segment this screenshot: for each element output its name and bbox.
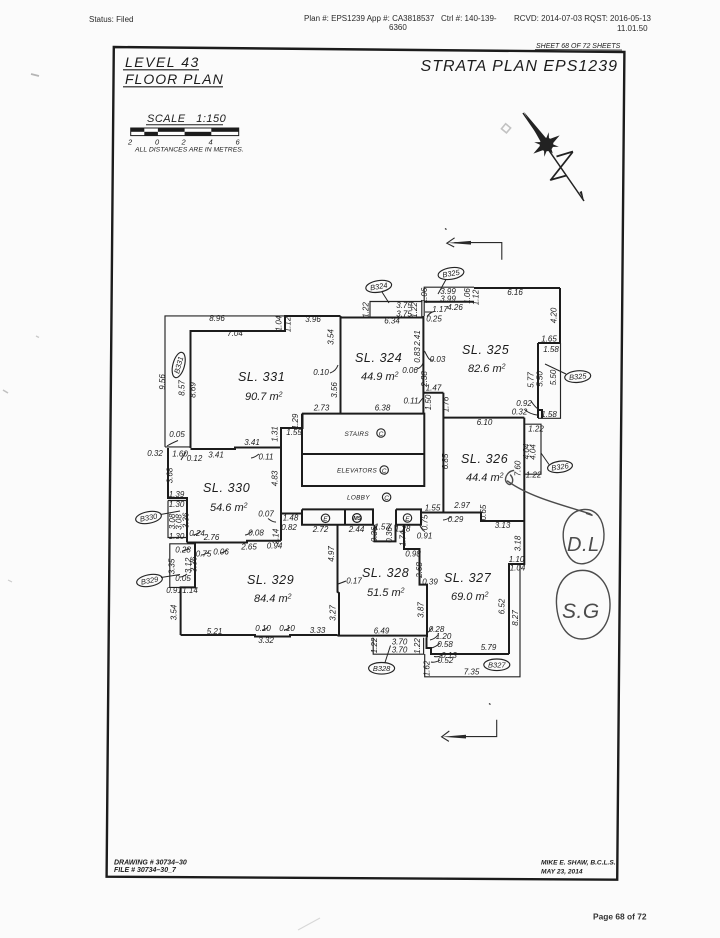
svg-text:0.03: 0.03 — [430, 355, 446, 364]
svg-text:1.04: 1.04 — [275, 315, 284, 331]
svg-text:4: 4 — [209, 138, 213, 147]
svg-text:4.26: 4.26 — [447, 303, 463, 312]
svg-text:3.35: 3.35 — [168, 558, 177, 574]
svg-text:0.29: 0.29 — [448, 515, 464, 524]
svg-text:3.36: 3.36 — [182, 512, 191, 528]
svg-text:3.87: 3.87 — [417, 602, 426, 618]
svg-text:44.9 m2: 44.9 m2 — [361, 371, 399, 383]
svg-text:SL. 331: SL. 331 — [238, 370, 285, 384]
svg-text:1.58: 1.58 — [543, 345, 559, 354]
svg-text:1.17: 1.17 — [432, 305, 448, 314]
svg-text:B325: B325 — [569, 371, 588, 382]
svg-text:0.98: 0.98 — [405, 550, 421, 559]
svg-text:2.41: 2.41 — [413, 330, 422, 347]
svg-text:0.07: 0.07 — [258, 510, 274, 519]
svg-text:LOBBY: LOBBY — [347, 495, 370, 502]
svg-text:11.01.50: 11.01.50 — [617, 24, 648, 33]
svg-text:7.35: 7.35 — [464, 668, 480, 677]
svg-text:0.91: 0.91 — [417, 532, 433, 541]
svg-text:0.91: 0.91 — [166, 586, 182, 595]
svg-text:MIKE E. SHAW, B.C.L.S.: MIKE E. SHAW, B.C.L.S. — [541, 860, 616, 867]
svg-text:3.41: 3.41 — [244, 438, 260, 447]
svg-text:8.96: 8.96 — [209, 314, 225, 323]
svg-text:3.36: 3.36 — [190, 556, 199, 572]
svg-text:1.22: 1.22 — [370, 637, 379, 653]
svg-text:0.10: 0.10 — [279, 624, 295, 633]
svg-text:6.85: 6.85 — [441, 453, 450, 469]
svg-text:5.79: 5.79 — [481, 643, 497, 652]
svg-text:44.4 m2: 44.4 m2 — [466, 472, 504, 484]
svg-text:6.52: 6.52 — [498, 598, 507, 614]
svg-text:2.76: 2.76 — [203, 533, 220, 542]
svg-text:0.65: 0.65 — [479, 504, 488, 520]
svg-text:6.49: 6.49 — [374, 627, 390, 636]
svg-text:0.06: 0.06 — [213, 548, 229, 557]
svg-text:0.28: 0.28 — [175, 546, 191, 555]
svg-text:51.5 m2: 51.5 m2 — [367, 587, 405, 599]
svg-text:3.18: 3.18 — [514, 535, 523, 551]
svg-text:0: 0 — [155, 138, 160, 147]
svg-text:SL. 324: SL. 324 — [355, 351, 402, 365]
svg-text:SL. 325: SL. 325 — [462, 343, 509, 357]
svg-text:DRAWING # 30734–30: DRAWING # 30734–30 — [114, 860, 187, 867]
svg-text:STRATA PLAN EPS1239: STRATA PLAN EPS1239 — [421, 58, 618, 75]
svg-text:3.56: 3.56 — [330, 382, 339, 398]
svg-text:2.68: 2.68 — [415, 562, 424, 579]
svg-text:1.12: 1.12 — [472, 289, 481, 305]
svg-text:0.11: 0.11 — [404, 397, 419, 406]
svg-text:5.50: 5.50 — [549, 369, 558, 385]
svg-text:3.41: 3.41 — [208, 451, 224, 460]
svg-text:84.4 m2: 84.4 m2 — [254, 593, 292, 605]
svg-text:0.83: 0.83 — [413, 347, 422, 363]
svg-text:3.54: 3.54 — [327, 329, 336, 345]
svg-text:69.0 m2: 69.0 m2 — [451, 591, 489, 603]
svg-text:5.77: 5.77 — [527, 372, 536, 388]
svg-text:1.48: 1.48 — [283, 514, 299, 523]
svg-text:2.97: 2.97 — [453, 501, 470, 510]
svg-text:8.57: 8.57 — [178, 380, 187, 396]
svg-text:STAIRS: STAIRS — [345, 431, 370, 438]
svg-text:1.06: 1.06 — [420, 287, 429, 303]
svg-text:3.54: 3.54 — [170, 604, 179, 620]
svg-text:0.05: 0.05 — [169, 430, 185, 439]
svg-text:3.68: 3.68 — [166, 467, 175, 483]
svg-text:0.12: 0.12 — [187, 454, 203, 463]
svg-text:54.6 m2: 54.6 m2 — [210, 502, 248, 514]
svg-text:3.27: 3.27 — [329, 605, 338, 621]
svg-text:5.50: 5.50 — [536, 371, 545, 387]
svg-text:0.75: 0.75 — [421, 514, 430, 530]
svg-text:1.50: 1.50 — [424, 394, 433, 410]
svg-text:82.6 m2: 82.6 m2 — [468, 363, 506, 375]
svg-text:0.36: 0.36 — [370, 526, 379, 542]
svg-text:1.14: 1.14 — [182, 586, 198, 595]
svg-text:MAY 23, 2014: MAY 23, 2014 — [541, 869, 583, 876]
svg-text:4.83: 4.83 — [271, 470, 280, 486]
svg-text:1.22: 1.22 — [526, 471, 542, 480]
svg-text:0.11: 0.11 — [259, 453, 274, 462]
svg-text:2.44: 2.44 — [348, 525, 365, 534]
svg-text:1.31: 1.31 — [271, 426, 280, 442]
svg-text:90.7 m2: 90.7 m2 — [245, 391, 283, 403]
svg-text:6.10: 6.10 — [477, 418, 493, 427]
svg-text:2.65: 2.65 — [240, 543, 257, 552]
svg-text:FILE # 30734–30_7: FILE # 30734–30_7 — [114, 867, 177, 874]
svg-text:C: C — [384, 495, 389, 502]
svg-text:1.22: 1.22 — [528, 425, 544, 434]
svg-text:1.30: 1.30 — [169, 500, 185, 509]
svg-text:Plan #: EPS1239 App #: CA38185: Plan #: EPS1239 App #: CA3818537 Ctrl #:… — [304, 14, 497, 23]
svg-text:B331: B331 — [172, 355, 185, 374]
svg-text:E: E — [405, 516, 410, 523]
svg-text:1.65: 1.65 — [541, 335, 557, 344]
svg-text:B328: B328 — [373, 664, 391, 673]
svg-text:7.60: 7.60 — [514, 460, 523, 476]
svg-text:1.58: 1.58 — [541, 410, 557, 419]
svg-text:S.G: S.G — [562, 600, 600, 623]
svg-text:SL. 329: SL. 329 — [247, 573, 294, 587]
svg-text:1.62: 1.62 — [423, 660, 432, 676]
svg-text:5.21: 5.21 — [207, 627, 223, 636]
svg-text:3.33: 3.33 — [310, 626, 326, 635]
svg-text:C: C — [382, 468, 387, 475]
svg-text:E: E — [323, 516, 328, 523]
svg-text:6360: 6360 — [389, 23, 407, 32]
svg-text:0.36: 0.36 — [385, 527, 394, 543]
svg-text:1.30: 1.30 — [169, 532, 185, 541]
svg-text:1.76: 1.76 — [442, 396, 451, 412]
svg-text:4.04: 4.04 — [529, 444, 538, 460]
svg-text:0.10: 0.10 — [255, 624, 271, 633]
svg-text:Status: Filed: Status: Filed — [89, 15, 133, 24]
svg-text:3.96: 3.96 — [305, 315, 321, 324]
svg-text:B327: B327 — [488, 660, 506, 669]
svg-text:1.39: 1.39 — [169, 490, 185, 499]
svg-text:0.32: 0.32 — [147, 449, 163, 458]
svg-text:1.74: 1.74 — [399, 530, 408, 546]
svg-text:SHEET 68 OF 72 SHEETS: SHEET 68 OF 72 SHEETS — [536, 43, 621, 50]
svg-text:SL. 328: SL. 328 — [362, 566, 409, 580]
svg-text:0.06: 0.06 — [402, 366, 418, 375]
svg-text:2.72: 2.72 — [312, 525, 329, 534]
svg-text:1.12: 1.12 — [284, 316, 293, 332]
svg-text:LEVEL 43: LEVEL 43 — [125, 54, 200, 70]
svg-text:1.47: 1.47 — [426, 384, 442, 393]
svg-text:4.97: 4.97 — [327, 546, 336, 562]
svg-text:ALL DISTANCES ARE IN METRES.: ALL DISTANCES ARE IN METRES. — [134, 147, 244, 154]
svg-text:Page 68 of 72: Page 68 of 72 — [593, 912, 647, 922]
svg-text:7.04: 7.04 — [227, 329, 243, 338]
svg-text:0.17: 0.17 — [346, 577, 362, 586]
svg-text:6.38: 6.38 — [375, 404, 391, 413]
svg-text:6.16: 6.16 — [507, 288, 523, 297]
svg-text:D.L: D.L — [567, 534, 600, 556]
svg-text:0.82: 0.82 — [281, 523, 297, 532]
svg-text:0.08: 0.08 — [248, 529, 264, 538]
svg-text:1.22: 1.22 — [410, 302, 419, 318]
svg-text:0.39: 0.39 — [422, 578, 438, 587]
svg-text:2.73: 2.73 — [313, 404, 330, 413]
svg-text:9.56: 9.56 — [158, 374, 167, 390]
svg-text:SL. 326: SL. 326 — [461, 452, 508, 466]
svg-text:SL. 330: SL. 330 — [203, 481, 250, 495]
svg-text:1.22: 1.22 — [362, 302, 371, 318]
svg-text:2: 2 — [181, 138, 187, 147]
svg-text:C: C — [379, 431, 384, 438]
svg-text:FLOOR PLAN: FLOOR PLAN — [125, 71, 224, 87]
svg-text:3.32: 3.32 — [258, 636, 274, 645]
svg-text:1.55: 1.55 — [425, 504, 441, 513]
svg-text:1.22: 1.22 — [413, 638, 422, 654]
svg-text:0.94: 0.94 — [267, 542, 283, 551]
svg-text:1.04: 1.04 — [510, 564, 526, 573]
svg-text:0.05: 0.05 — [175, 574, 191, 583]
svg-text:6: 6 — [236, 138, 241, 147]
svg-text:8.27: 8.27 — [511, 610, 520, 626]
svg-text:MS: MS — [353, 516, 361, 522]
svg-text:0.25: 0.25 — [426, 315, 442, 324]
svg-text:3.13: 3.13 — [495, 521, 511, 530]
svg-text:0.10: 0.10 — [313, 368, 329, 377]
svg-text:3.70: 3.70 — [392, 646, 408, 655]
svg-text:6.34: 6.34 — [384, 317, 400, 326]
svg-text:2: 2 — [127, 138, 133, 147]
svg-text:1.29: 1.29 — [291, 413, 300, 429]
svg-text:RCVD: 2014-07-03 RQST: 2016-05: RCVD: 2014-07-03 RQST: 2016-05-13 — [514, 14, 652, 23]
svg-text:ELEVATORS: ELEVATORS — [337, 468, 378, 475]
svg-text:SCALE 1:150: SCALE 1:150 — [147, 113, 227, 125]
svg-text:8.69: 8.69 — [189, 382, 198, 398]
svg-text:0.32: 0.32 — [512, 408, 528, 417]
svg-text:4.20: 4.20 — [550, 307, 559, 323]
svg-text:0.58: 0.58 — [437, 640, 453, 649]
svg-text:SL. 327: SL. 327 — [444, 571, 492, 585]
